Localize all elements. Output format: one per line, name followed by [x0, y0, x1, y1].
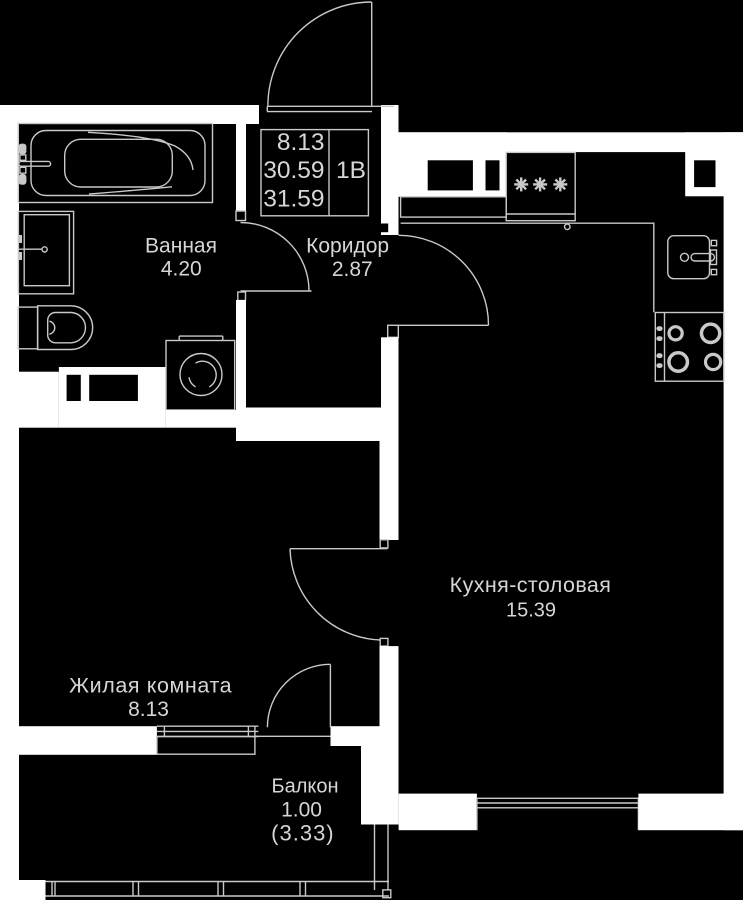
- svg-text:(3.33): (3.33): [271, 821, 334, 846]
- svg-text:Коридор: Коридор: [306, 235, 389, 258]
- svg-text:1В: 1В: [336, 157, 366, 184]
- svg-text:2.87: 2.87: [332, 258, 373, 281]
- svg-text:8.13: 8.13: [277, 129, 325, 156]
- svg-text:1.00: 1.00: [281, 798, 322, 821]
- svg-text:8.13: 8.13: [128, 698, 169, 721]
- svg-text:Кухня-столовая: Кухня-столовая: [450, 573, 612, 597]
- svg-text:30.59: 30.59: [263, 157, 324, 184]
- svg-text:Жилая комната: Жилая комната: [69, 673, 232, 697]
- svg-text:Балкон: Балкон: [271, 775, 338, 797]
- svg-text:Ванная: Ванная: [145, 235, 217, 258]
- svg-text:4.20: 4.20: [161, 258, 202, 281]
- svg-text:15.39: 15.39: [506, 600, 556, 622]
- svg-text:31.59: 31.59: [263, 185, 324, 212]
